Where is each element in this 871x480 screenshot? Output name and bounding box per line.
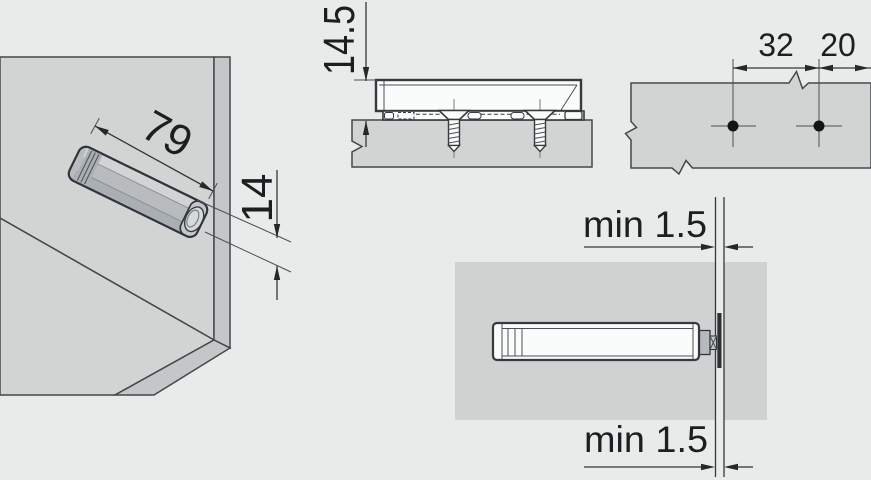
cabinet-side-panel-edge [214, 57, 230, 348]
dim-label-hole-pitch: 32 [758, 27, 794, 63]
unit-pin [700, 331, 711, 355]
dim-label-edge-distance: 20 [820, 27, 856, 63]
plate-slot [468, 113, 481, 120]
dim-label-gap-bottom: min 1.5 [584, 419, 708, 460]
hole-dot [814, 121, 825, 132]
drawing-canvas: 79 14 [0, 0, 871, 480]
plate-slot [511, 113, 524, 120]
dim-label-plate-height: 14.5 [315, 5, 364, 75]
dim-label-height: 14 [233, 174, 282, 223]
panel-top-view [626, 72, 871, 175]
hole-dot [728, 121, 739, 132]
adapter-plate-section [376, 80, 584, 120]
dim-label-gap-top: min 1.5 [583, 204, 707, 245]
plate-tab [565, 112, 582, 120]
tip-on-unit-plan [493, 323, 717, 360]
wood-panel-section [352, 120, 592, 167]
plate-foot [385, 113, 394, 120]
striker-plate [717, 313, 721, 368]
technical-drawing: 79 14 [0, 0, 871, 480]
